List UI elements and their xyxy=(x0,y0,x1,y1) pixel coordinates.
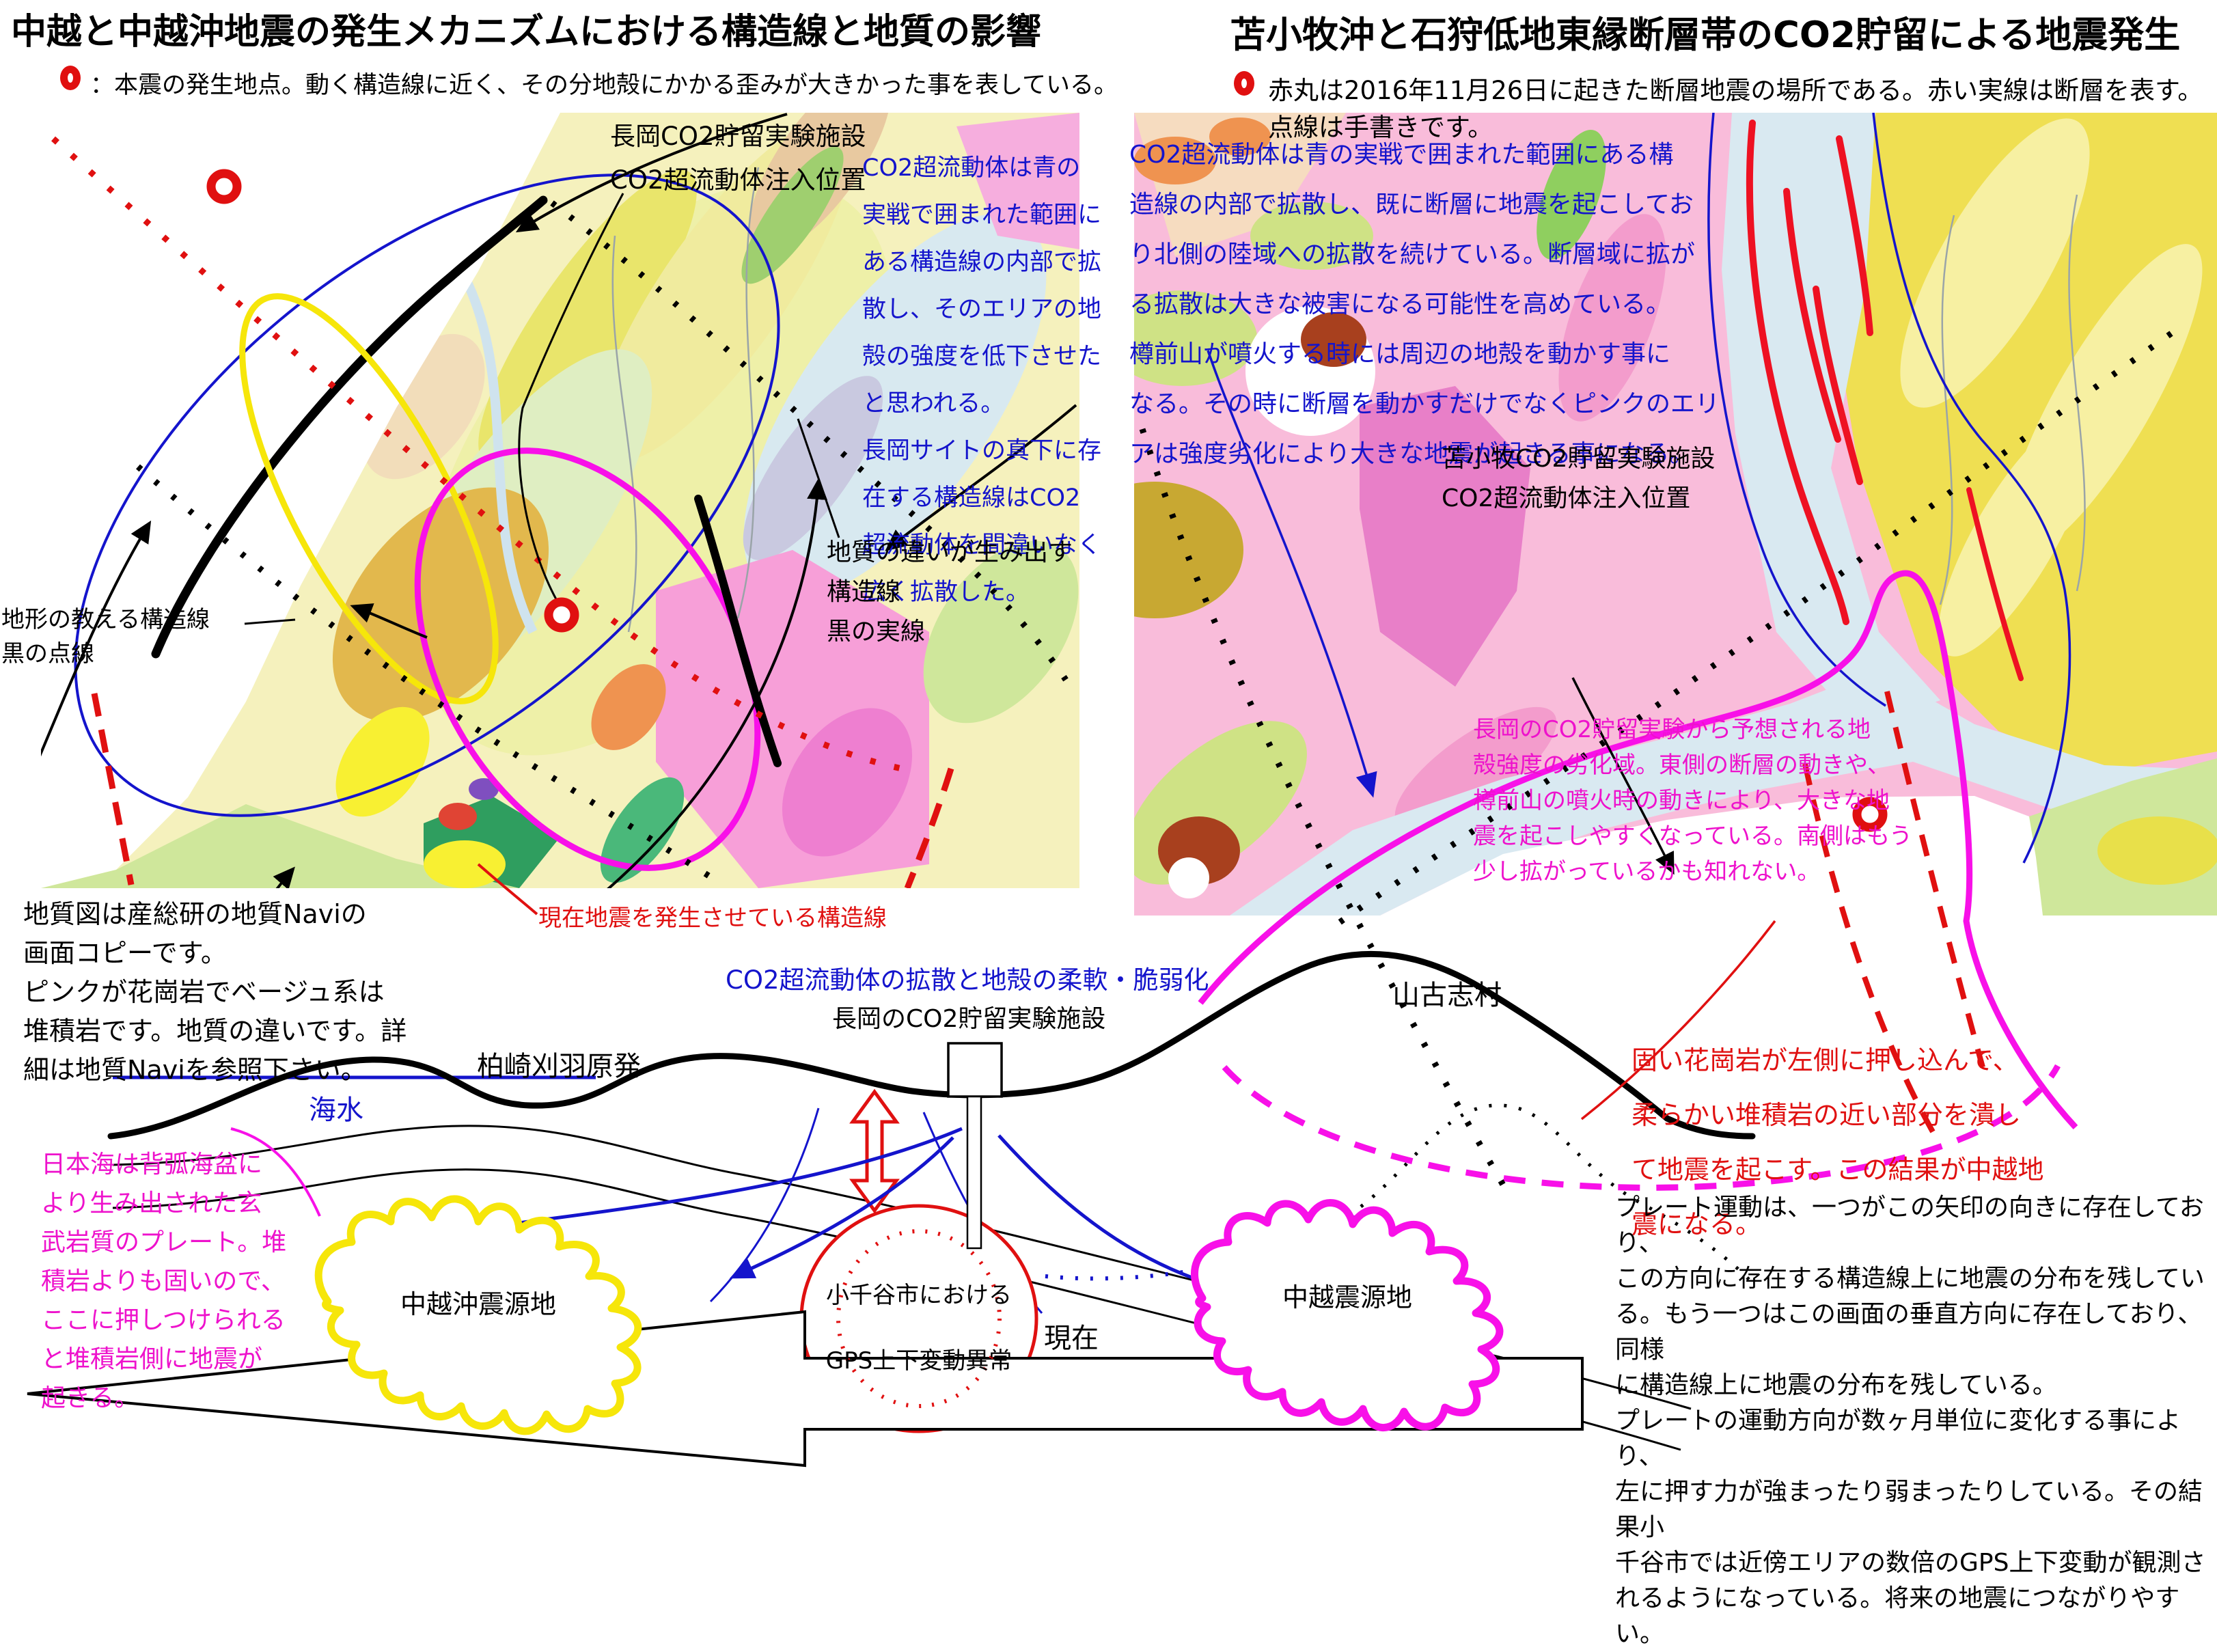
nagaoka-site-label: 長岡のCO2貯留実験施設 xyxy=(832,1002,1105,1037)
slide-canvas: { "palette": { "annotation_blue": "#1414… xyxy=(0,0,2217,1468)
seawater-label: 海水 xyxy=(309,1090,363,1130)
plate-motion-note: プレート運動は、一つがこの矢印の向きに存在しており、 この方向に存在する構造線上… xyxy=(1615,1190,2217,1652)
japan-sea-note: 日本海は背弧海盆に より生み出された玄 武岩質のプレート。堆 積岩よりも固いので… xyxy=(41,1145,286,1418)
geology-fault-label: 地質の違いが生み出す 構造線 黒の実線 xyxy=(827,533,1073,652)
gps-anomaly-label: 小千谷市における GPS上下変動異常 xyxy=(796,1263,1042,1394)
kashiwazaki-label: 柏崎刈羽原発 xyxy=(477,1047,641,1086)
epicenter-ring-icon xyxy=(60,66,81,90)
chuetsu-oki-label: 中越沖震源地 xyxy=(342,1286,615,1323)
tomakomai-facility-label: 苫小牧CO2貯留実験施設 CO2超流動体注入位置 xyxy=(1442,439,1715,519)
right-diffusion-note: CO2超流動体は青の実戦で囲まれた範囲にある構 造線の内部で拡散し、既に断層に地… xyxy=(1129,130,1720,479)
topo-fault-label: 地形の教える構造線 黒の点線 xyxy=(1,603,210,671)
weakened-zone-note: 長岡のCO2貯留実験から予想される地 殻強度の劣化域。東側の断層の動きや、 樽前… xyxy=(1473,712,1912,890)
current-fault-label: 現在地震を発生させている構造線 xyxy=(538,902,887,935)
nagaoka-facility-label: 長岡CO2貯留実験施設 CO2超流動体注入位置 xyxy=(610,115,866,202)
injection-well-pipe xyxy=(967,1097,981,1248)
left-title: 中越と中越沖地震の発生メカニズムにおける構造線と地質の影響 xyxy=(11,7,1041,58)
mainshock-marker-chuetsu-oki xyxy=(211,174,237,199)
yamakoshi-label: 山古志村 xyxy=(1392,976,1502,1015)
epicenter-ring-icon xyxy=(1234,71,1254,96)
chuetsu-label: 中越震源地 xyxy=(1211,1279,1484,1317)
vertical-motion-arrow xyxy=(853,1092,896,1211)
right-title: 苫小牧沖と石狩低地東縁断層帯のCO2貯留による地震発生 xyxy=(1230,10,2180,62)
injection-facility-box xyxy=(948,1043,1002,1097)
left-legend: ：本震の発生地点。動く構造線に近く、その分地殻にかかる歪みが大きかった事を表して… xyxy=(90,68,1118,103)
bottom-heading: CO2超流動体の拡散と地殻の柔軟・脆弱化 xyxy=(726,962,1209,999)
mainshock-marker-chuetsu xyxy=(549,602,575,628)
genzai-label: 現在 xyxy=(1044,1319,1099,1358)
geonavi-note: 地質図は産総研の地質Naviの 画面コピーです。 ピンクが花崗岩でベージュ系は … xyxy=(23,895,407,1090)
